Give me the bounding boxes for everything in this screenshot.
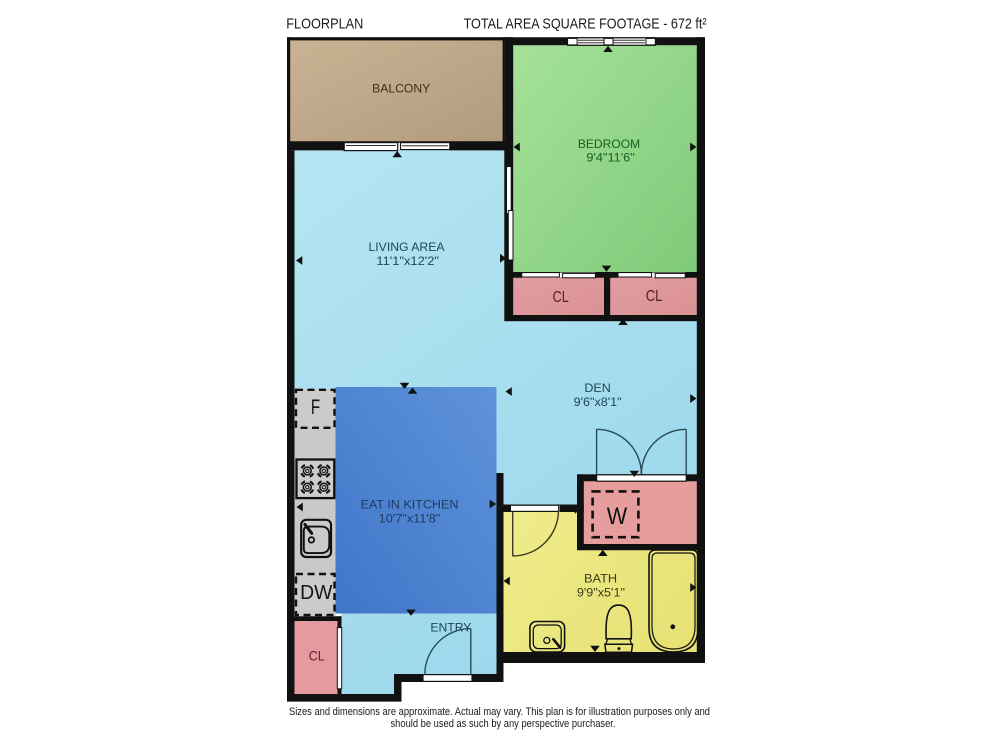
svg-text:ENTRY: ENTRY [430, 621, 471, 635]
svg-text:CL: CL [553, 289, 569, 306]
svg-text:CL: CL [646, 288, 663, 305]
svg-text:9'4"11'6": 9'4"11'6" [586, 151, 634, 165]
svg-text:should be used as such by any: should be used as such by any perspectiv… [391, 718, 616, 730]
svg-text:LIVING AREA: LIVING AREA [369, 240, 446, 254]
svg-text:TOTAL AREA SQUARE FOOTAGE - 67: TOTAL AREA SQUARE FOOTAGE - 672 ft² [464, 16, 707, 33]
svg-text:9'9"x5'1": 9'9"x5'1" [577, 586, 625, 600]
svg-text:EAT IN KITCHEN: EAT IN KITCHEN [361, 498, 459, 512]
svg-text:CL: CL [309, 648, 325, 664]
svg-text:11'1"x12'2": 11'1"x12'2" [376, 254, 439, 268]
svg-text:BALCONY: BALCONY [372, 82, 430, 96]
svg-text:F: F [311, 395, 320, 419]
svg-text:FLOORPLAN: FLOORPLAN [286, 16, 363, 33]
svg-text:10'7"x11'8": 10'7"x11'8" [379, 511, 441, 525]
svg-text:BATH: BATH [584, 572, 617, 586]
svg-text:BEDROOM: BEDROOM [578, 137, 640, 151]
svg-text:DW: DW [300, 582, 332, 604]
svg-text:DEN: DEN [584, 381, 610, 395]
svg-text:9'6"x8'1": 9'6"x8'1" [574, 395, 622, 409]
svg-text:W: W [607, 503, 628, 530]
svg-text:Sizes and dimensions are appro: Sizes and dimensions are approximate. Ac… [289, 706, 710, 718]
